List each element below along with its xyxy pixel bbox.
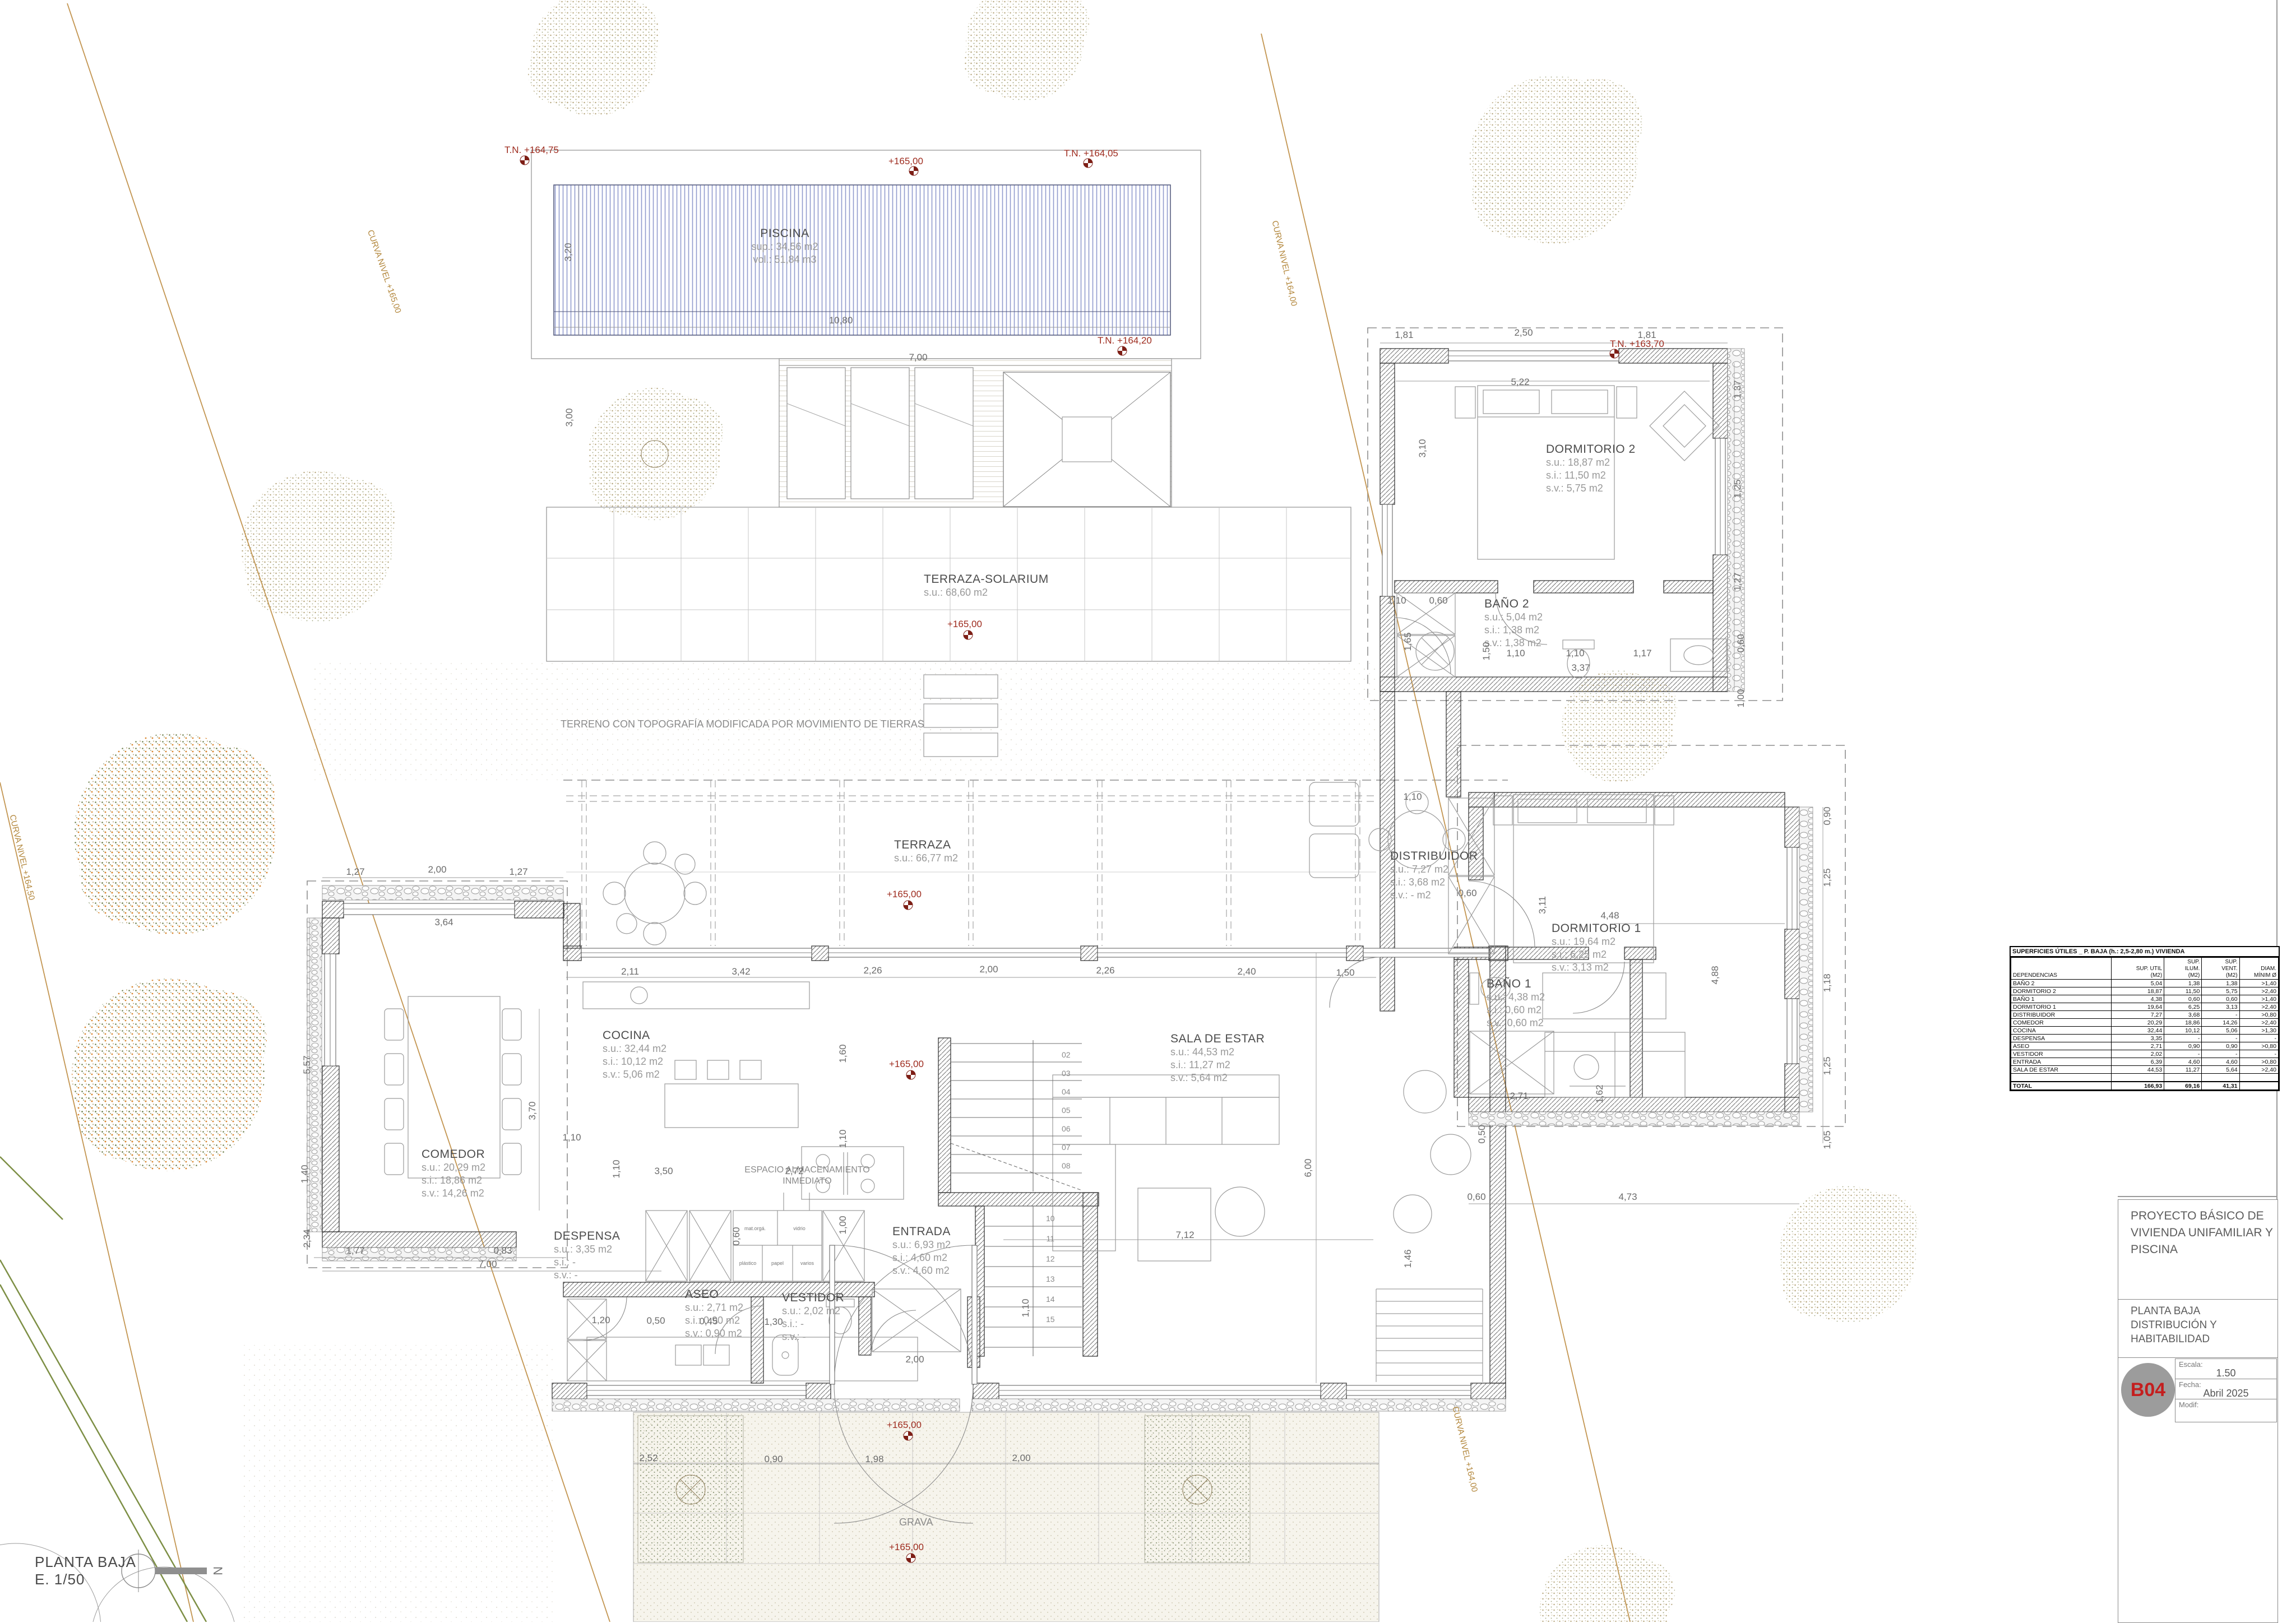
dimension: 2,72	[785, 1166, 803, 1177]
dimension: 1,25	[1732, 479, 1743, 498]
dimension: 0,90	[1822, 806, 1833, 825]
dimension: 1,62	[1594, 1084, 1605, 1103]
benchmark-icon	[520, 156, 530, 165]
dimension: 1,27	[509, 866, 527, 878]
room-label-bano-1: BAÑO 1 s.u.: 4,38 m2 s.i.: 0,60 m2 s.v.:…	[1487, 977, 1545, 1030]
dimension: 1,10	[1566, 648, 1584, 659]
dimension: 2,00	[979, 964, 998, 975]
dimension: 4,88	[1710, 966, 1721, 984]
benchmark-icon	[1610, 349, 1619, 359]
room-label-bano-2: BAÑO 2 s.u.: 5,04 m2 s.i.: 1,38 m2 s.v.:…	[1484, 597, 1543, 650]
room-label-aseo: ASEO s.u.: 2,71 m2 s.i.: 0,90 m2 s.v.: 0…	[685, 1288, 743, 1340]
room-label-cocina: COCINA s.u.: 32,44 m2 s.i.: 10,12 m2 s.v…	[603, 1029, 666, 1081]
floor-plan-sheet: { "title_block": { "project_l1": "PROYEC…	[0, 0, 2296, 1622]
dimension: 1,50	[1481, 642, 1492, 660]
sheet-code-badge: B04	[2121, 1363, 2175, 1417]
dimension: 2,11	[621, 966, 639, 977]
dimension: 4,48	[1600, 910, 1619, 921]
level-label: +165,00	[889, 1542, 924, 1553]
dimension: 3,00	[564, 408, 575, 426]
dimension: 1,30	[764, 1316, 783, 1328]
room-label-sala-de-estar: SALA DE ESTAR s.u.: 44,53 m2 s.i.: 11,27…	[1170, 1032, 1265, 1084]
gravel-label: GRAVA	[899, 1517, 933, 1528]
dimension: 1,00	[837, 1216, 849, 1234]
level-label: +165,00	[889, 1059, 924, 1070]
room-label-comedor: COMEDOR s.u.: 20,29 m2 s.i.: 18,86 m2 s.…	[422, 1148, 485, 1200]
table-total-row: TOTAL166,93 69,1641,31	[2011, 1082, 2279, 1090]
dimension: 0,83	[493, 1245, 512, 1256]
table-row: SALA DE ESTAR44,5311,275,64>2,40	[2011, 1066, 2279, 1074]
bin-label-paper: papel	[771, 1260, 784, 1266]
dimension: 2,00	[905, 1354, 924, 1365]
dimension: 1,18	[1822, 973, 1833, 992]
benchmark-icon	[904, 1431, 913, 1441]
dimension: 1,10	[611, 1160, 622, 1178]
dimension: 2,26	[863, 965, 882, 976]
areas-table: SUPERFICIES ÚTILES _ P. BAJA (h.: 2,5-2,…	[2010, 946, 2280, 1091]
dimension: 1,10	[837, 1129, 849, 1148]
dimension: 0,60	[1429, 595, 1447, 606]
dimension: 1,65	[1402, 632, 1414, 651]
dimension: 5,57	[302, 1055, 313, 1074]
level-label: T.N. +164,05	[1064, 148, 1118, 159]
dimension: 1,81	[1637, 330, 1656, 341]
level-label: +165,00	[887, 889, 922, 900]
benchmark-icon	[904, 901, 913, 910]
dimension: 1,10	[1506, 648, 1525, 659]
dimension: 2,26	[1096, 965, 1114, 976]
floor-plan-drawing	[0, 0, 2296, 1622]
bin-label-misc: varios	[800, 1260, 814, 1266]
dimension: 1,60	[837, 1044, 849, 1063]
room-label-dormitorio-2: DORMITORIO 2 s.u.: 18,87 m2 s.i.: 11,50 …	[1546, 443, 1636, 495]
table-row: DORMITORIO 218,8711,505,75>2,40	[2011, 987, 2279, 995]
dimension: 1,27	[1732, 572, 1743, 591]
table-row: BAÑO 14,380,600,60>1,40	[2011, 995, 2279, 1003]
dimension: 1,98	[865, 1454, 883, 1465]
dimension: 1,00	[1735, 689, 1747, 707]
level-label: +165,00	[947, 619, 982, 630]
room-label-piscina: PISCINA sup.: 34,56 m2 vol.: 51,84 m3	[751, 227, 818, 266]
dimension: 7,12	[1175, 1230, 1194, 1241]
dimension: 0,50	[646, 1315, 665, 1327]
bin-label-glass: vidrio	[793, 1226, 806, 1231]
dimension: 1,25	[1822, 868, 1833, 887]
scale-field: Escala: 1.50	[2175, 1358, 2277, 1380]
room-label-entrada: ENTRADA s.u.: 6,93 m2 s.i.: 4,60 m2 s.v.…	[892, 1225, 951, 1277]
benchmark-icon	[906, 1070, 916, 1080]
dimension: 2,52	[639, 1453, 658, 1464]
dimension: 1,10	[562, 1132, 581, 1143]
dimension: 1,05	[1822, 1130, 1833, 1149]
plan-title: PLANTA BAJA	[35, 1554, 136, 1571]
dimension: 1,81	[1395, 330, 1413, 341]
dimension: 6,00	[1303, 1158, 1314, 1177]
benchmark-icon	[964, 630, 973, 640]
table-row: ENTRADA6,394,604,60>0,80	[2011, 1058, 2279, 1066]
benchmark-icon	[1084, 159, 1093, 168]
dimension: 3,11	[1537, 896, 1548, 914]
dimension: 1,10	[1403, 791, 1422, 803]
dimension: 0,60	[1467, 1191, 1485, 1203]
dimension: 2,71	[1510, 1091, 1528, 1102]
dimension: 2,00	[1012, 1453, 1030, 1464]
stair-numbers-flight1: 0203 0405 0607 08	[1062, 1046, 1071, 1175]
stair-numbers-flight2: 1011 1213 1415	[1046, 1208, 1055, 1329]
terrain-note: TERRENO CON TOPOGRAFÍA MODIFICADA POR MO…	[561, 718, 924, 730]
table-row: DESPENSA3,35---	[2011, 1035, 2279, 1042]
storage-note: ESPACIO ALMACENAMIENTO INMEDIATO	[723, 1165, 891, 1187]
dimension: 7,00	[909, 352, 927, 363]
dimension: 1,27	[346, 866, 364, 878]
dimension: 3,37	[1571, 662, 1590, 674]
dimension: 0,60	[731, 1227, 742, 1245]
dimension: 1,77	[346, 1245, 364, 1256]
dimension: 1,10	[1020, 1299, 1031, 1317]
bin-label-organic: mat.orgá.	[744, 1226, 766, 1231]
table-row: VESTIDOR2,02---	[2011, 1050, 2279, 1058]
table-spacer-row	[2011, 1074, 2279, 1082]
table-row: BAÑO 25,041,381,38>1,40	[2011, 980, 2279, 987]
table-row: COMEDOR20,2918,8614,26>2,40	[2011, 1019, 2279, 1027]
dimension: 3,50	[654, 1166, 673, 1177]
room-label-vestidor: VESTIDOR s.u.: 2,02 m2 s.i.: - s.v.: -	[782, 1291, 844, 1343]
dimension: 3,64	[434, 917, 453, 928]
title-block-project: PROYECTO BÁSICO DE VIVIENDA UNIFAMILIAR …	[2118, 1199, 2278, 1300]
dimension: 1,20	[591, 1315, 610, 1326]
room-label-terraza: TERRAZA s.u.: 66,77 m2	[894, 838, 958, 865]
level-label: +165,00	[887, 1420, 922, 1431]
dimension: 4,73	[1618, 1191, 1637, 1203]
room-label-terraza-solarium: TERRAZA-SOLARIUM s.u.: 68,60 m2	[924, 573, 1049, 599]
dimension: 7,00	[478, 1259, 497, 1270]
dimension: 2,50	[1514, 327, 1533, 338]
dimension: 0,45	[699, 1316, 717, 1327]
benchmark-icon	[909, 166, 919, 176]
dimension: 0,50	[1476, 1125, 1488, 1143]
bin-label-plastic: plástico	[739, 1260, 757, 1266]
areas-table-title: SUPERFICIES ÚTILES _ P. BAJA (h.: 2,5-2,…	[2011, 947, 2279, 957]
north-arrow-label: N	[210, 1566, 225, 1575]
dimension: 1,50	[1336, 967, 1354, 979]
table-row: COCINA32,4410,125,06>1,30	[2011, 1027, 2279, 1035]
plan-scale: E. 1/50	[35, 1571, 136, 1588]
dimension: 10,80	[829, 315, 853, 326]
benchmark-icon	[1118, 346, 1127, 356]
dimension: 2,00	[428, 864, 446, 875]
dimension: 2,40	[1237, 966, 1256, 977]
dimension: 3,20	[563, 243, 574, 261]
dimension: 3,42	[732, 966, 750, 977]
dimension: 0,60	[1735, 634, 1747, 652]
dimension: 3,10	[1417, 439, 1428, 457]
level-label: T.N. +164,20	[1098, 335, 1152, 346]
dimension: 1,25	[1822, 1056, 1833, 1075]
table-row: DORMITORIO 119,646,253,13>2,40	[2011, 1003, 2279, 1011]
modification-field: Modif:	[2175, 1399, 2277, 1422]
dimension: 3,70	[527, 1101, 538, 1120]
plan-footer: PLANTA BAJA E. 1/50	[35, 1554, 136, 1588]
benchmark-icon	[906, 1554, 916, 1563]
dimension: 2,34	[302, 1229, 313, 1248]
dimension: 1,10	[1387, 595, 1406, 606]
table-header-row: DEPENDENCIAS SUP. UTIL (M2) SUP. ILUM. (…	[2011, 958, 2279, 980]
table-row: DISTRIBUIDOR7,273,68->0,80	[2011, 1011, 2279, 1019]
date-field: Fecha: Abril 2025	[2175, 1379, 2277, 1400]
dimension: 1,37	[1732, 380, 1743, 398]
dimension: 5,22	[1511, 377, 1529, 388]
level-label: T.N. +164,75	[504, 145, 559, 156]
room-label-dormitorio-1: DORMITORIO 1 s.u.: 19,64 m2 s.i.: 6,25 m…	[1552, 922, 1641, 974]
dimension: 1,40	[299, 1165, 311, 1183]
room-label-despensa: DESPENSA s.u.: 3,35 m2 s.i.: - s.v.: -	[554, 1230, 620, 1282]
dimension: 0,60	[1458, 888, 1476, 899]
level-label: +165,00	[888, 156, 923, 167]
dimension: 1,46	[1402, 1249, 1414, 1268]
title-block-sheet-title: PLANTA BAJA DISTRIBUCIÓN Y HABITABILIDAD	[2118, 1299, 2278, 1358]
dimension: 0,90	[764, 1454, 783, 1465]
dimension: 1,17	[1633, 648, 1651, 659]
table-row: ASEO2,710,900,90>0,80	[2011, 1042, 2279, 1050]
